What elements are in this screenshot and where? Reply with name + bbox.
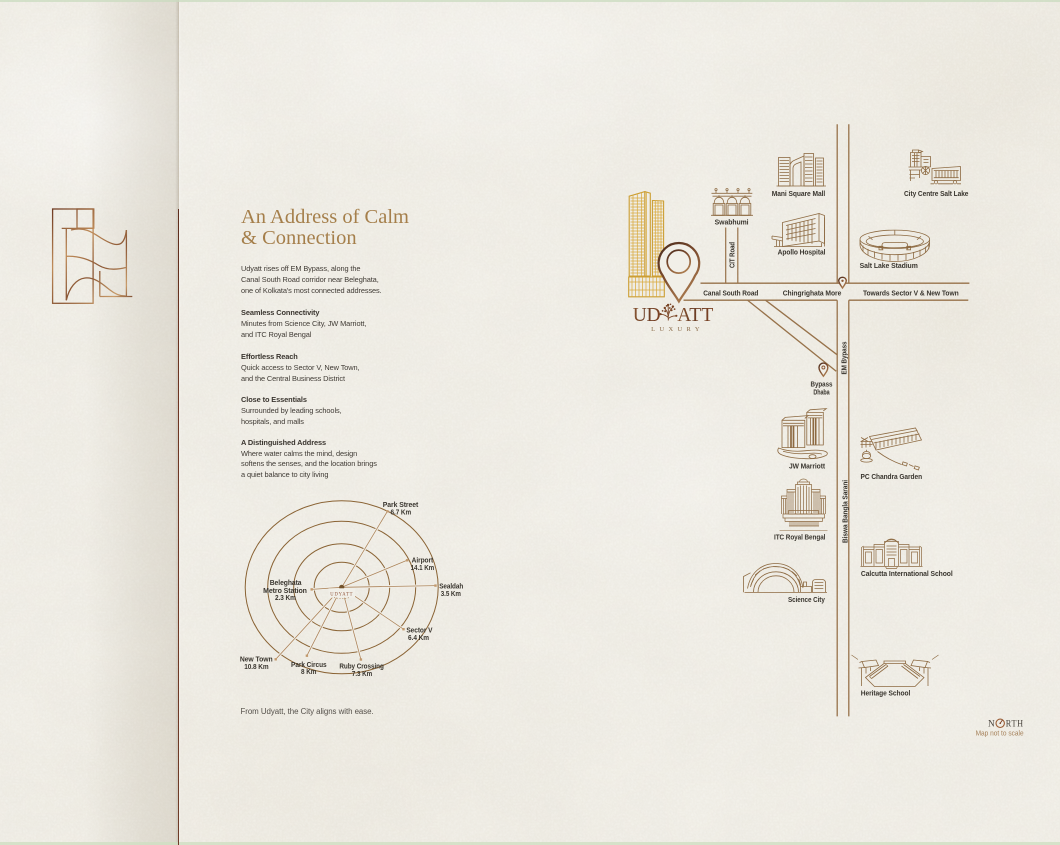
svg-text:10.8 Km: 10.8 Km: [244, 662, 268, 671]
svg-text:Science City: Science City: [788, 595, 825, 604]
svg-text:Heritage School: Heritage School: [861, 689, 911, 698]
svg-text:Mani Square Mall: Mani Square Mall: [772, 189, 825, 198]
svg-text:Calcutta International School: Calcutta International School: [861, 569, 953, 578]
svg-text:EM Bypass: EM Bypass: [840, 341, 849, 374]
svg-text:6.4 Km: 6.4 Km: [408, 633, 429, 642]
svg-text:N: N: [988, 719, 996, 729]
svg-text:Towards Sector V & New Town: Towards Sector V & New Town: [863, 288, 959, 297]
svg-text:Canal South Road: Canal South Road: [703, 288, 758, 297]
svg-text:ITC Royal Bengal: ITC Royal Bengal: [774, 533, 825, 542]
svg-text:Biswa Bangla Sarani: Biswa Bangla Sarani: [840, 480, 849, 543]
svg-text:RTH: RTH: [1006, 719, 1024, 729]
svg-text:JW Marriott: JW Marriott: [789, 461, 826, 470]
svg-text:14.1 Km: 14.1 Km: [411, 563, 435, 572]
svg-text:6.7 Km: 6.7 Km: [391, 508, 412, 517]
svg-text:LUXURY: LUXURY: [651, 326, 704, 333]
svg-text:7.3 Km: 7.3 Km: [352, 669, 372, 678]
svg-text:Apollo Hospital: Apollo Hospital: [778, 248, 826, 257]
svg-text:CIT Road: CIT Road: [728, 242, 737, 268]
svg-text:Chingrighata More: Chingrighata More: [783, 288, 842, 297]
svg-text:8 Km: 8 Km: [301, 667, 316, 676]
svg-text:Salt Lake Stadium: Salt Lake Stadium: [860, 261, 918, 270]
svg-text:City Centre Salt Lake: City Centre Salt Lake: [904, 189, 968, 198]
svg-text:UD: UD: [633, 305, 661, 326]
svg-text:3.5 Km: 3.5 Km: [441, 589, 461, 598]
svg-text:UDYATT: UDYATT: [330, 591, 353, 597]
svg-text:Dhaba: Dhaba: [813, 387, 830, 396]
svg-text:Swabhumi: Swabhumi: [715, 217, 749, 226]
svg-text:ATT: ATT: [677, 305, 713, 326]
svg-text:2.3 Km: 2.3 Km: [275, 593, 296, 602]
svg-text:Map not to scale: Map not to scale: [976, 731, 1024, 738]
svg-text:PC Chandra Garden: PC Chandra Garden: [861, 472, 923, 481]
